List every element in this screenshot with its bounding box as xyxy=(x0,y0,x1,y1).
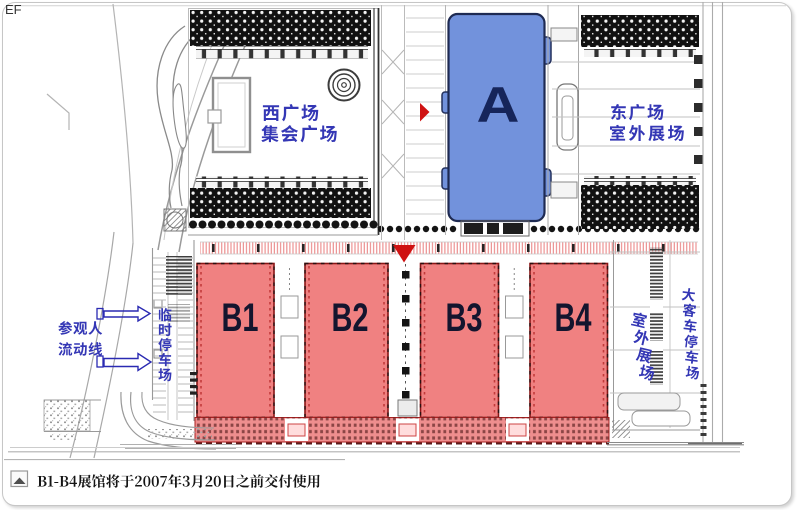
svg-text:A: A xyxy=(477,77,520,133)
svg-text:B1: B1 xyxy=(222,296,259,340)
svg-text:B4: B4 xyxy=(555,296,593,340)
svg-text:EF: EF xyxy=(5,2,22,17)
svg-text:B2: B2 xyxy=(332,296,369,340)
svg-text:B3: B3 xyxy=(446,296,483,340)
